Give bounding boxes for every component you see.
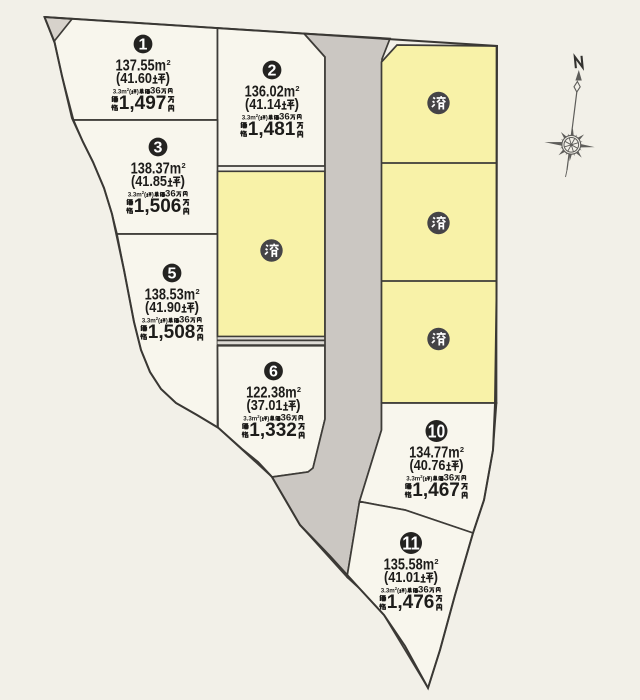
svg-text:2: 2 — [182, 161, 186, 170]
svg-text:2: 2 — [434, 557, 438, 566]
svg-text:): ) — [459, 457, 464, 474]
svg-text:1: 1 — [139, 37, 148, 54]
svg-text:2: 2 — [268, 63, 277, 80]
svg-text:(41.85: (41.85 — [131, 173, 167, 190]
svg-text:): ) — [166, 70, 171, 87]
svg-text:(41.90: (41.90 — [145, 299, 181, 316]
svg-text:6: 6 — [269, 364, 278, 381]
svg-text:(37.01: (37.01 — [247, 397, 283, 414]
svg-text:1,508: 1,508 — [148, 322, 196, 343]
svg-text:1,481: 1,481 — [248, 119, 296, 140]
svg-text:2: 2 — [460, 445, 464, 454]
svg-text:): ) — [296, 397, 301, 414]
svg-text:3: 3 — [154, 140, 163, 157]
svg-text:5: 5 — [168, 266, 177, 283]
svg-text:2: 2 — [297, 385, 301, 394]
svg-text:2: 2 — [295, 84, 299, 93]
svg-text:): ) — [181, 173, 186, 190]
svg-text:1,497: 1,497 — [119, 93, 167, 114]
svg-text:2: 2 — [196, 287, 200, 296]
svg-text:(40.76: (40.76 — [410, 457, 446, 474]
svg-text:): ) — [195, 299, 200, 316]
svg-text:): ) — [295, 96, 300, 113]
svg-text:2: 2 — [167, 58, 171, 67]
svg-text:1,506: 1,506 — [134, 196, 182, 217]
svg-text:1,476: 1,476 — [387, 592, 435, 613]
svg-text:(41.01: (41.01 — [384, 569, 420, 586]
svg-text:(41.60: (41.60 — [116, 70, 152, 87]
svg-text:10: 10 — [428, 421, 446, 441]
svg-text:1,332: 1,332 — [249, 420, 297, 441]
svg-text:(41.14: (41.14 — [245, 96, 281, 113]
svg-text:11: 11 — [402, 533, 420, 553]
svg-text:): ) — [434, 569, 439, 586]
svg-text:1,467: 1,467 — [412, 480, 460, 501]
